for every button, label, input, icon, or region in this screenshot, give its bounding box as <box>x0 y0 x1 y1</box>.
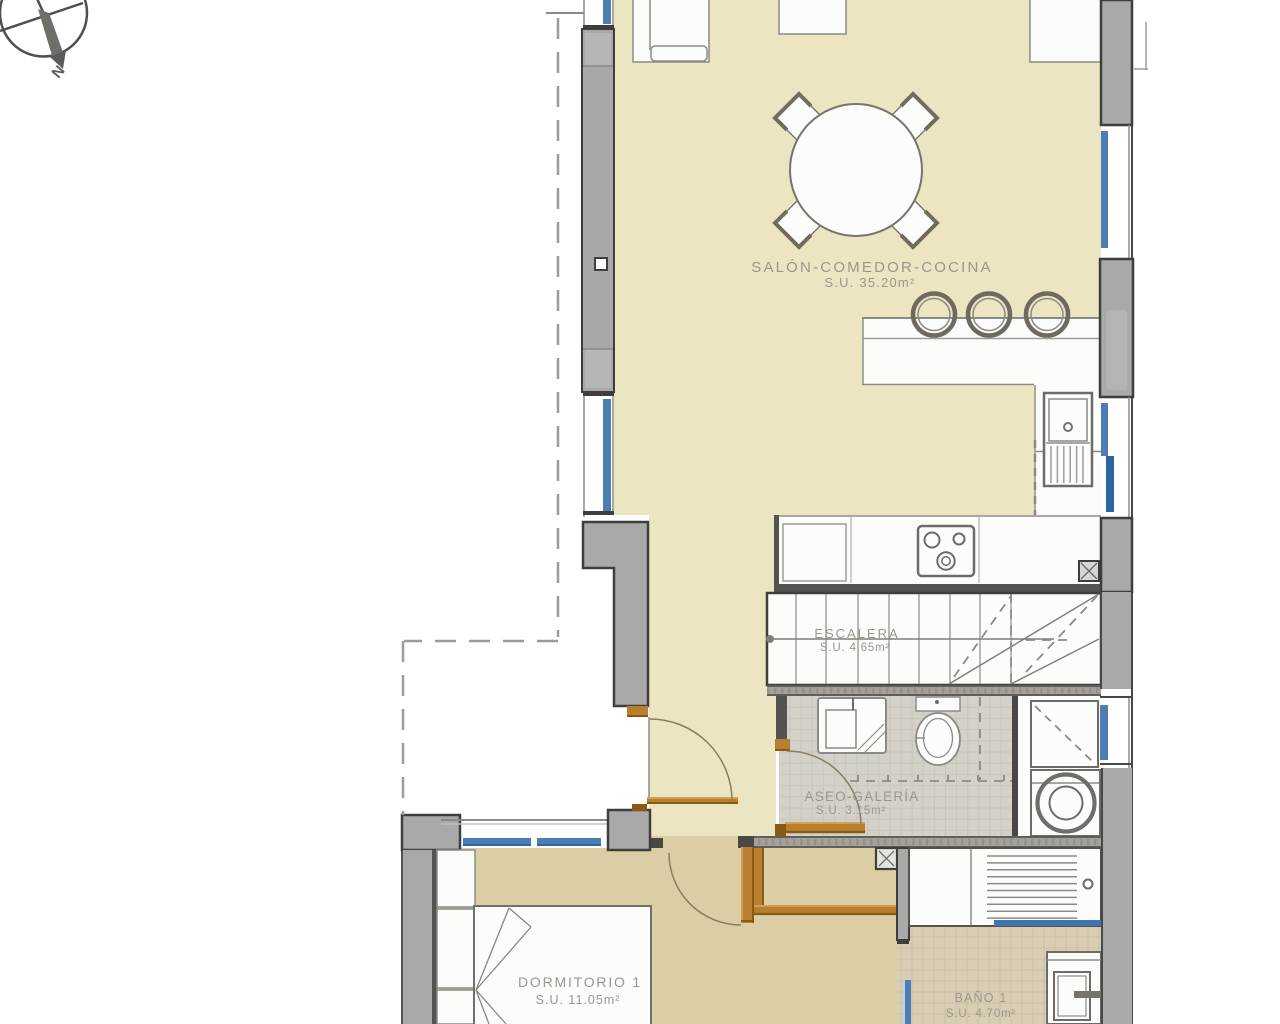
svg-text:S.U. 35.20m²: S.U. 35.20m² <box>825 275 916 290</box>
svg-text:S.U. 4.65m²: S.U. 4.65m² <box>820 642 890 654</box>
svg-text:ASEO-GALERÍA: ASEO-GALERÍA <box>805 789 920 804</box>
svg-text:S.U. 4.70m²: S.U. 4.70m² <box>946 1008 1016 1020</box>
svg-text:ESCALERA: ESCALERA <box>814 626 899 641</box>
svg-text:DORMITORIO 1: DORMITORIO 1 <box>518 974 642 990</box>
svg-text:SALÓN-COMEDOR-COCINA: SALÓN-COMEDOR-COCINA <box>751 259 993 276</box>
svg-text:BAÑO 1: BAÑO 1 <box>954 991 1007 1005</box>
svg-text:S.U. 11.05m²: S.U. 11.05m² <box>536 993 621 1007</box>
svg-text:S.U. 3.15m²: S.U. 3.15m² <box>816 805 886 817</box>
